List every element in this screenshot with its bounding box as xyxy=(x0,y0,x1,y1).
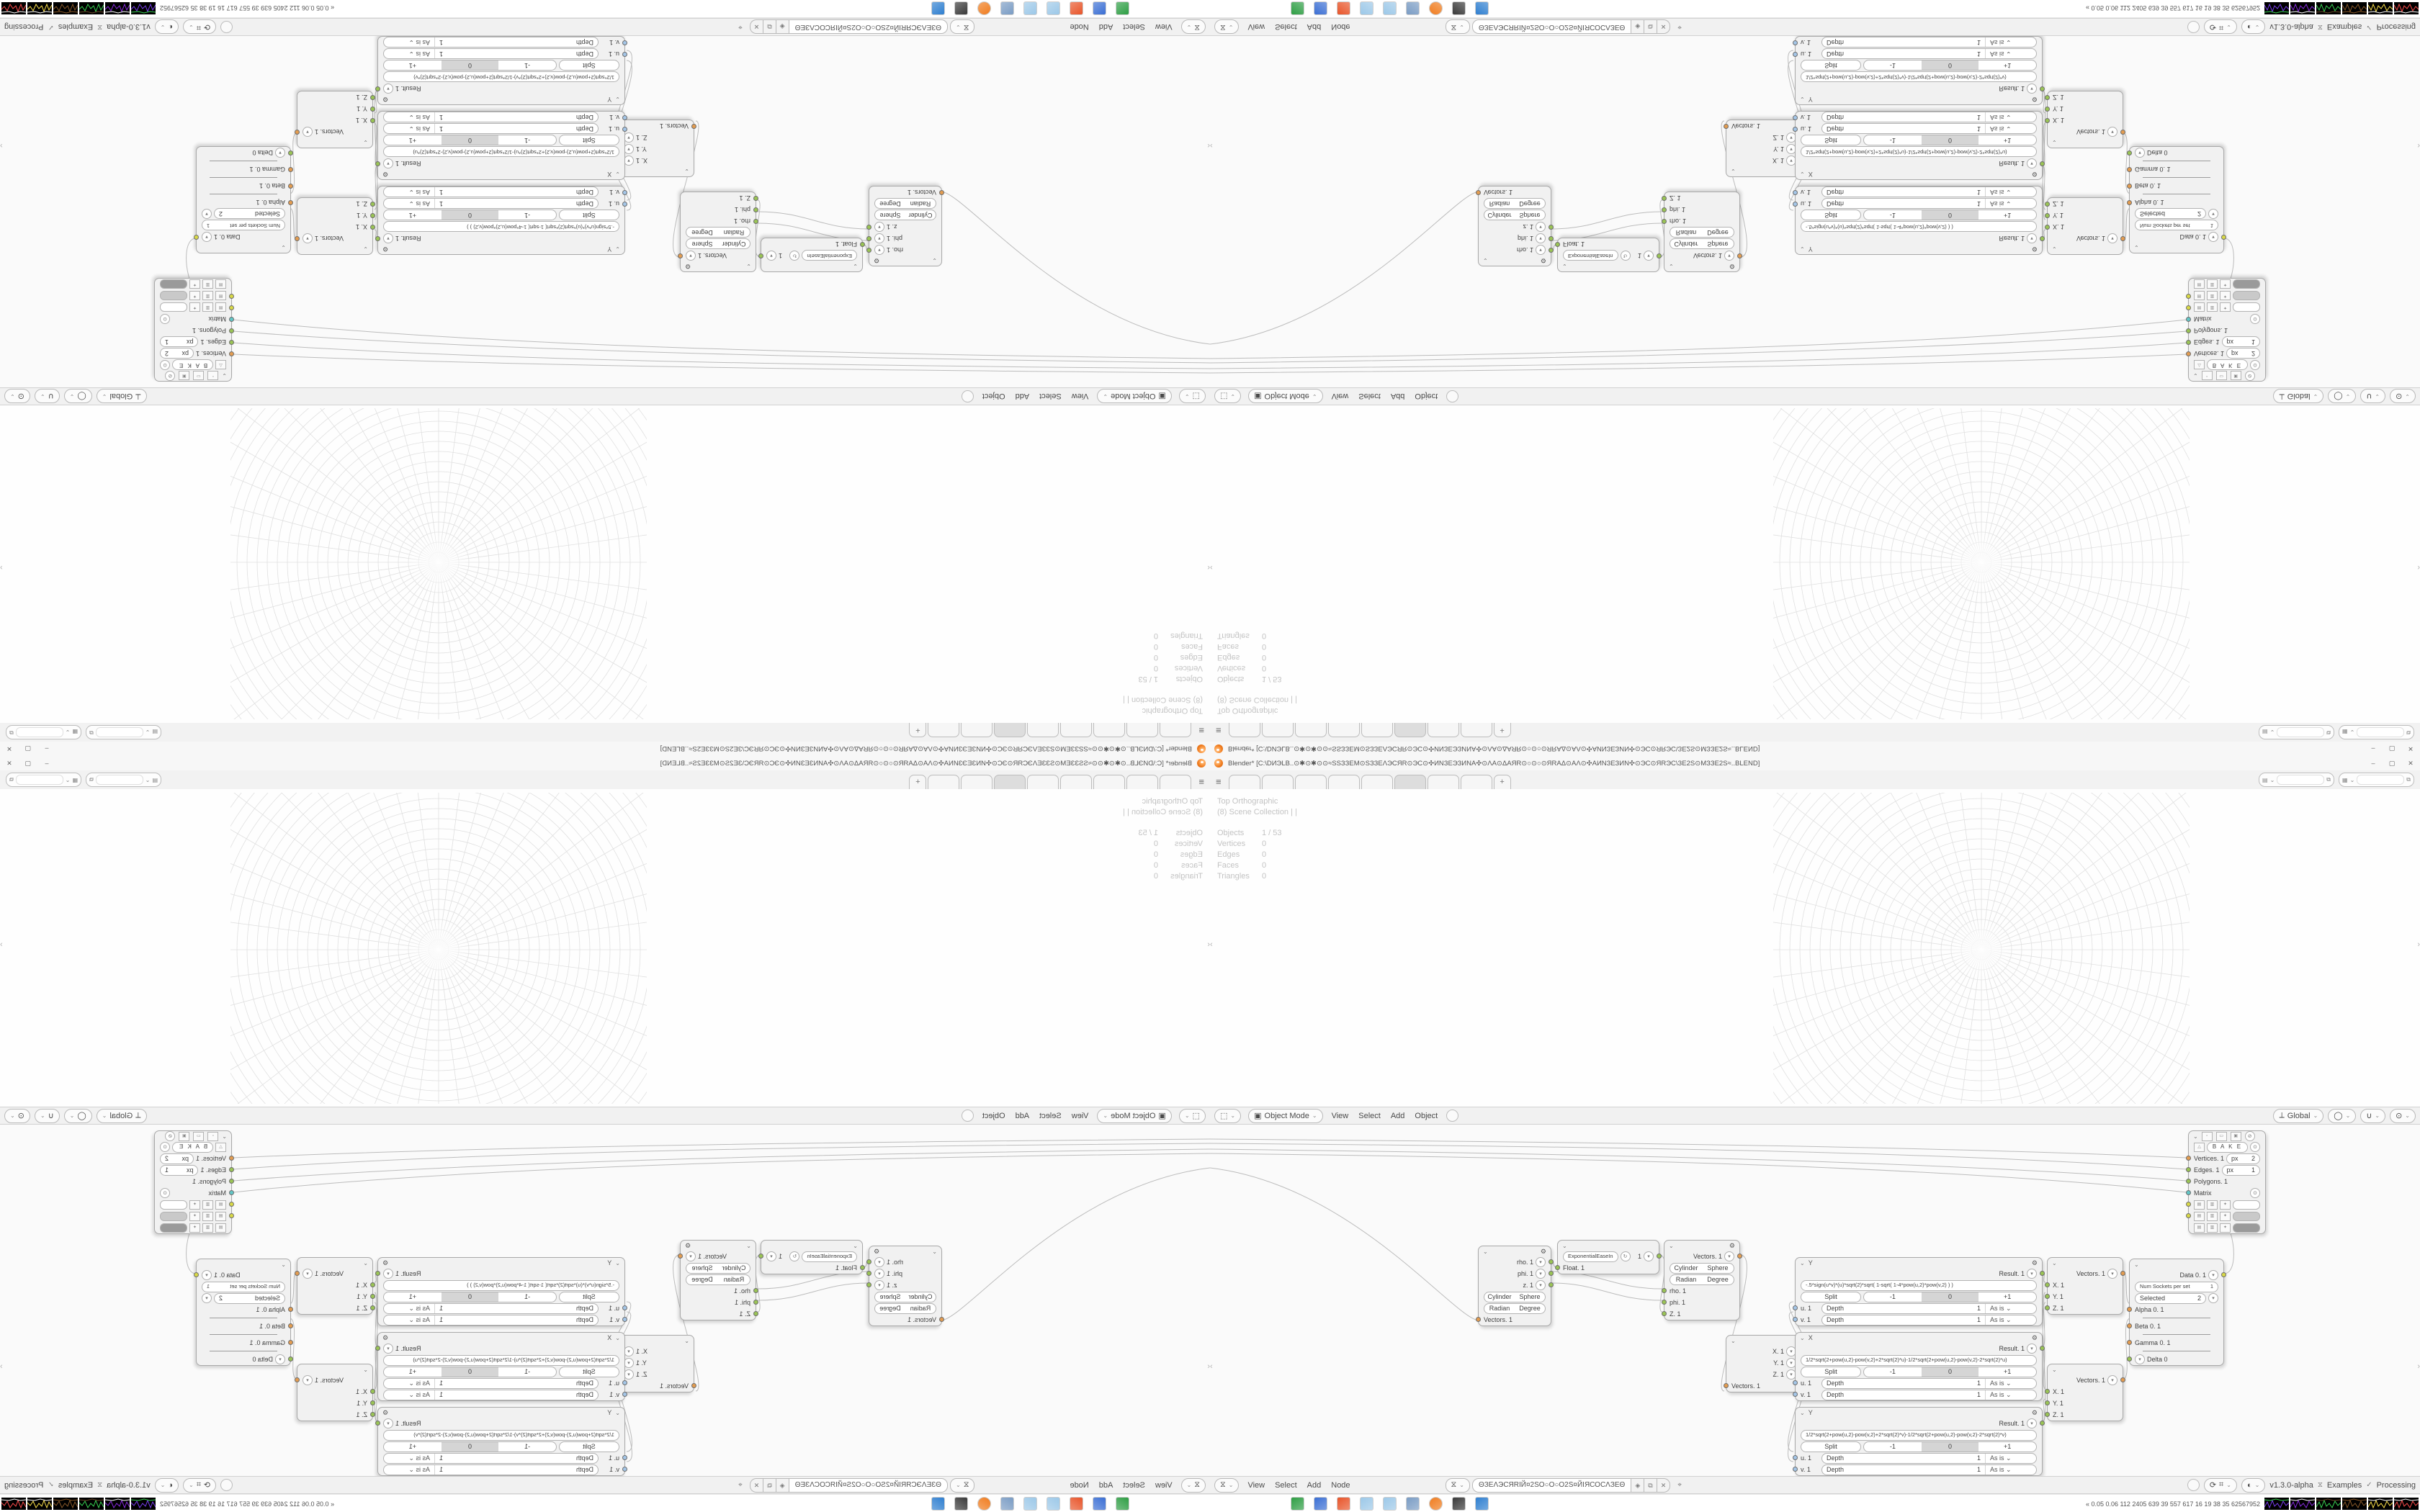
scene-name-field[interactable] xyxy=(2277,727,2324,737)
menu-select[interactable]: Select xyxy=(1038,1112,1063,1120)
taskbar-icon-notebook-2[interactable] xyxy=(1383,1,1397,15)
socket-v-in[interactable] xyxy=(1793,115,1798,120)
taskbar-icon-notebook-1[interactable] xyxy=(1047,1,1060,15)
menu-view[interactable]: View xyxy=(1070,1112,1090,1120)
color-btn[interactable]: ✦ xyxy=(2220,280,2231,289)
menu-add[interactable]: Add xyxy=(1389,1112,1407,1120)
collapse-icon[interactable]: ⌄ xyxy=(615,171,620,178)
socket-menu-icon[interactable]: ▾ xyxy=(1536,222,1546,232)
toolbar-toggle-icon[interactable]: ‹ xyxy=(1210,138,1217,153)
split-button[interactable]: Split xyxy=(1801,60,1861,71)
color-btn[interactable]: ▥ xyxy=(2207,1200,2218,1210)
socket-vectors-out[interactable] xyxy=(295,130,300,135)
depth-row[interactable]: Depth1As is ⌄ xyxy=(1821,199,2037,210)
taskbar-icon-audio-app[interactable] xyxy=(1452,1,1466,15)
px-value[interactable]: 1 xyxy=(165,338,169,347)
collapse-icon[interactable]: ⌄ xyxy=(1483,1248,1488,1255)
grease-pencil-icon[interactable] xyxy=(1446,1110,1458,1122)
pin-icon[interactable]: ⌖ xyxy=(738,23,743,31)
socket-u-in[interactable] xyxy=(622,127,627,132)
socket-menu-icon[interactable]: ▾ xyxy=(2135,1354,2145,1364)
split-button[interactable]: Split xyxy=(1801,1292,1861,1302)
socket-in[interactable] xyxy=(370,202,375,207)
workspace-tab-3[interactable] xyxy=(1093,775,1125,789)
matrix-options-icon[interactable]: ⊙ xyxy=(160,314,170,324)
depth-row[interactable]: Depth1As is ⌄ xyxy=(1821,49,2037,60)
workspace-tab-3[interactable] xyxy=(1295,775,1327,789)
new-scene-icon[interactable]: ⧉ xyxy=(2326,729,2331,736)
socket-menu-icon[interactable]: ▾ xyxy=(275,148,285,158)
workspace-tab-1[interactable] xyxy=(1160,723,1191,737)
socket-edges[interactable] xyxy=(229,1167,234,1172)
pivot-point-button[interactable]: ◯ ⌄ xyxy=(64,390,92,404)
node-formula-x-2[interactable]: ⌄X⚙Result. 1▾1/2*sqrt(2+pow(u,2)-pow(v,2… xyxy=(377,1332,625,1401)
socket-in[interactable] xyxy=(2045,1294,2050,1299)
socket-beta-in[interactable] xyxy=(288,184,293,189)
split-button[interactable]: Split xyxy=(559,1292,619,1302)
angle-toggle[interactable]: RadianDegree xyxy=(874,199,936,210)
node-vector-out[interactable]: ⌄ X. 1▾ Y. 1▾ Z. 1▾ Vectors. 1 xyxy=(1726,1335,1802,1392)
collapse-icon[interactable]: ⌄ xyxy=(363,1260,368,1266)
viewlayer-name-field[interactable] xyxy=(16,775,63,785)
socket-in[interactable] xyxy=(370,118,375,123)
socket-menu-icon[interactable]: ▾ xyxy=(1724,251,1734,261)
menu-view[interactable]: View xyxy=(1246,1481,1266,1490)
tree-browse-button[interactable]: ⧖ ⌄ xyxy=(950,20,974,35)
close-button[interactable]: ✕ xyxy=(0,760,19,768)
color-btn[interactable]: ✦ xyxy=(2220,292,2231,301)
unlink-tree-button[interactable]: ✕ xyxy=(750,1478,763,1493)
socket-result-out[interactable] xyxy=(375,1346,380,1351)
socket-rho-out[interactable] xyxy=(866,248,871,253)
collapse-icon[interactable]: ⌄ xyxy=(222,373,227,379)
curve-icon[interactable]: ↻ xyxy=(1621,251,1631,261)
socket-in[interactable] xyxy=(370,1412,375,1417)
tree-browse-button[interactable]: ⧖ ⌄ xyxy=(950,1478,974,1493)
minimize-button[interactable]: – xyxy=(2364,760,2383,768)
maximize-button[interactable]: ▢ xyxy=(2383,760,2401,768)
workspace-tab-2[interactable] xyxy=(1262,723,1294,737)
node-vector-in-1[interactable]: ⌄Vectors. 1▾X. 1Y. 1Z. 1 xyxy=(2047,1257,2123,1315)
num-sockets-value[interactable]: 1 xyxy=(207,221,210,230)
num-sockets-value[interactable]: 1 xyxy=(207,1282,210,1292)
socket-in[interactable] xyxy=(370,1389,375,1394)
socket-menu-icon[interactable]: ▾ xyxy=(302,1375,313,1385)
socket-menu-icon[interactable]: ▾ xyxy=(202,209,212,219)
menu-object[interactable]: Object xyxy=(981,392,1007,401)
depth-row[interactable]: Depth1As is ⌄ xyxy=(1821,1464,2037,1475)
scene-selector[interactable]: ▤ ⌄ ⧉ xyxy=(86,725,161,739)
socket-menu-icon[interactable]: ▾ xyxy=(383,1344,393,1354)
socket-result-out[interactable] xyxy=(375,1421,380,1426)
socket-menu-icon[interactable]: ▾ xyxy=(874,1257,884,1267)
menu-select[interactable]: Select xyxy=(1357,392,1382,401)
curve-icon[interactable]: ↻ xyxy=(789,1251,799,1261)
tree-name[interactable]: ΘЗЕΛЭСЯRIЙ¤2SО○О○О2S¤ЙIЯСОСΛЗЕΘ xyxy=(789,1478,948,1493)
socket-v-in[interactable] xyxy=(622,1392,627,1397)
color-btn[interactable]: ✦ xyxy=(189,1200,200,1210)
node-editor[interactable]: ⌄ ▫ ▭ ▣ ⊘ △ B A K E ⊙ Vertices. 1 px 2 E… xyxy=(1210,1125,2420,1476)
menu-view[interactable]: View xyxy=(1154,23,1174,32)
socket-v-in[interactable] xyxy=(622,40,627,45)
unlink-tree-button[interactable]: ✕ xyxy=(750,20,763,35)
menu-node[interactable]: Node xyxy=(1068,23,1090,32)
transform-orientation-selector[interactable]: ⟂ Global ⌄ xyxy=(2273,1109,2323,1123)
taskbar-icon-notebook-1[interactable] xyxy=(1047,1497,1060,1511)
display-verts-icon[interactable]: ▫ xyxy=(2202,1132,2213,1141)
scene-name-field[interactable] xyxy=(96,775,143,785)
px-value[interactable]: 2 xyxy=(2251,349,2255,359)
new-scene-icon[interactable]: ⧉ xyxy=(2326,776,2331,783)
color-btn[interactable]: ▥ xyxy=(2207,303,2218,312)
snapping-button[interactable]: ∪ ⌄ xyxy=(35,1109,60,1123)
socket-menu-icon[interactable]: ▾ xyxy=(624,1346,634,1356)
socket-vectors-in[interactable] xyxy=(939,1317,944,1322)
socket-vectors-out[interactable] xyxy=(295,1377,300,1382)
display-faces-icon[interactable]: ▣ xyxy=(2231,372,2241,381)
socket-menu-icon[interactable]: ▾ xyxy=(1536,245,1546,255)
fake-user-button[interactable]: ◈ xyxy=(776,20,789,35)
socket-phi-in[interactable] xyxy=(753,1300,758,1305)
socket-rho-in[interactable] xyxy=(753,219,758,224)
socket-easing-out[interactable] xyxy=(1657,253,1662,258)
angle-toggle[interactable]: RadianDegree xyxy=(1484,1303,1546,1314)
num-sockets-value[interactable]: 1 xyxy=(2210,221,2213,230)
color-btn[interactable]: ✦ xyxy=(189,292,200,301)
menu-node[interactable]: Node xyxy=(1068,1481,1090,1490)
color-btn[interactable]: ▥ xyxy=(202,1223,213,1233)
workspace-tab-6[interactable] xyxy=(994,723,1026,737)
curve-icon[interactable]: ↻ xyxy=(789,251,799,261)
socket-rho-out[interactable] xyxy=(866,1259,871,1264)
collapse-icon[interactable]: ⌄ xyxy=(1562,1243,1567,1249)
num-sockets-value[interactable]: 1 xyxy=(2210,1282,2213,1292)
depth-row[interactable]: Depth1As is ⌄ xyxy=(383,37,599,48)
proportional-edit-button[interactable]: ⊙ ⌄ xyxy=(4,390,30,404)
socket-menu-icon[interactable]: ▾ xyxy=(302,1269,313,1279)
toolbar-toggle-icon[interactable]: ‹ xyxy=(1203,937,1210,953)
socket-phi-out[interactable] xyxy=(866,236,871,241)
socket-polygons[interactable] xyxy=(2186,1179,2191,1184)
menu-select[interactable]: Select xyxy=(1121,23,1147,32)
socket-menu-icon[interactable]: ▾ xyxy=(2208,1270,2218,1280)
color-btn[interactable]: ▤ xyxy=(2194,303,2205,312)
socket-in[interactable] xyxy=(2045,1389,2050,1394)
editor-type-button[interactable]: ⬚ ⌄ xyxy=(1214,1109,1241,1123)
workspace-tab-1[interactable] xyxy=(1160,775,1191,789)
coords-toggle[interactable]: CylinderSphere xyxy=(686,1263,750,1274)
menu-node[interactable]: Node xyxy=(1330,23,1351,32)
edge-color-swatch[interactable] xyxy=(160,1212,187,1221)
snap-toggle-icon[interactable] xyxy=(220,21,233,33)
node-vector-in-1[interactable]: ⌄Vectors. 1▾X. 1Y. 1Z. 1 xyxy=(2047,197,2123,255)
formula-field[interactable]: 1/2*sqrt(2+pow(u,2)-pow(v,2)+2*sqrt(2)*u… xyxy=(383,147,619,158)
coords-toggle[interactable]: CylinderSphere xyxy=(1484,210,1546,221)
collapse-icon[interactable]: ⌄ xyxy=(1731,1338,1736,1344)
collapse-icon[interactable]: ⌄ xyxy=(2052,140,2057,146)
menu-object[interactable]: Object xyxy=(1413,1112,1439,1120)
node-editor[interactable]: ⌄ ▫ ▭ ▣ ⊘ △ B A K E ⊙ Vertices. 1 px 2 E… xyxy=(1210,36,2420,387)
socket-menu-icon[interactable]: ▾ xyxy=(2027,84,2037,94)
bake-button[interactable]: B A K E xyxy=(172,360,213,371)
socket-matrix[interactable] xyxy=(229,317,234,322)
easing-mode-dropdown[interactable]: ExponentialEaseIn xyxy=(802,251,857,261)
socket-in[interactable] xyxy=(2045,107,2050,112)
socket-result-out[interactable] xyxy=(375,86,380,91)
node-vector-polar-out[interactable]: ⌄⚙ rho. 1▾ phi. 1▾ z. 1▾ CylinderSphere … xyxy=(1478,186,1551,266)
socket-vectors-out[interactable] xyxy=(1737,253,1742,258)
workspace-tab-7[interactable] xyxy=(961,775,992,789)
socket-vert-color[interactable] xyxy=(2186,305,2191,310)
socket-float-in[interactable] xyxy=(860,242,865,247)
socket-u-in[interactable] xyxy=(1793,127,1798,132)
socket-menu-icon[interactable]: ▾ xyxy=(624,1369,634,1380)
collapse-icon[interactable]: ⌄ xyxy=(1562,264,1567,270)
socket-menu-icon[interactable]: ▾ xyxy=(2208,209,2218,219)
overlay-options-button[interactable]: ⟳ ⌗ ⌄ xyxy=(183,1478,216,1493)
minimize-button[interactable]: – xyxy=(37,760,56,768)
depth-row[interactable]: Depth1As is ⌄ xyxy=(1821,187,2037,198)
node-vector-in-2[interactable]: ⌄Vectors. 1▾X. 1Y. 1Z. 1 xyxy=(297,91,373,148)
color-btn[interactable]: ▤ xyxy=(2194,292,2205,301)
socket-edge-color[interactable] xyxy=(229,294,234,299)
formula-field[interactable]: 1/2*sqrt(2+pow(u,2)-pow(v,2)+2*sqrt(2)*u… xyxy=(1801,1355,2037,1366)
pin-icon[interactable]: ⌖ xyxy=(1677,23,1682,31)
socket-in[interactable] xyxy=(370,95,375,100)
px-value[interactable]: 1 xyxy=(2251,338,2255,347)
taskbar-icon-notebook-2[interactable] xyxy=(1383,1497,1397,1511)
collapse-icon[interactable]: ⌄ xyxy=(2052,1367,2057,1373)
collapse-icon[interactable]: ⌄ xyxy=(281,1261,286,1268)
socket-menu-icon[interactable]: ▾ xyxy=(1536,1269,1546,1279)
socket-menu-icon[interactable]: ▾ xyxy=(874,1280,884,1290)
socket-menu-icon[interactable]: ▾ xyxy=(2135,148,2145,158)
color-btn[interactable]: ✦ xyxy=(2220,1223,2231,1233)
node-formula-y-3[interactable]: ⌄Y⚙Result. 1▾1/2*sqrt(2+pow(u,2)-pow(v,2… xyxy=(1795,1407,2043,1476)
app-menu-icon[interactable]: ≡ xyxy=(1216,776,1222,787)
taskbar-icon-display-app[interactable] xyxy=(931,1497,945,1511)
socket-edge-color[interactable] xyxy=(2186,1213,2191,1218)
color-btn[interactable]: ▥ xyxy=(202,1212,213,1221)
socket-menu-icon[interactable]: ▾ xyxy=(1536,1257,1546,1267)
workspace-tab-8[interactable] xyxy=(928,775,959,789)
taskbar-icon-file-manager[interactable] xyxy=(1291,1,1304,15)
collapse-icon[interactable]: ⌄ xyxy=(1800,171,1805,178)
socket-rho-out[interactable] xyxy=(1549,1259,1554,1264)
collapse-icon[interactable]: ⌄ xyxy=(615,246,620,253)
split-button[interactable]: Split xyxy=(559,1441,619,1452)
shading-options-button[interactable]: ◐ ⌄ xyxy=(2241,1478,2265,1493)
wrap-segmented[interactable]: -10+1 xyxy=(383,1367,557,1377)
node-vector-polar-in[interactable]: ⌄⚙ Vectors. 1▾ CylinderSphere RadianDegr… xyxy=(680,192,756,272)
node-formula-y-3[interactable]: ⌄Y⚙Result. 1▾1/2*sqrt(2+pow(u,2)-pow(v,2… xyxy=(1795,36,2043,105)
tree-name[interactable]: ΘЗЕΛЭСЯRIЙ¤2SО○О○О2S¤ЙIЯСОСΛЗЕΘ xyxy=(789,20,948,35)
collapse-icon[interactable]: ⌄ xyxy=(1669,1243,1674,1249)
angle-toggle[interactable]: RadianDegree xyxy=(686,1274,750,1285)
workspace-tab-7[interactable] xyxy=(1428,723,1459,737)
menu-object[interactable]: Object xyxy=(981,1112,1007,1120)
color-btn[interactable]: ▥ xyxy=(202,292,213,301)
socket-vectors-out[interactable] xyxy=(1737,1254,1742,1259)
proportional-edit-button[interactable]: ⊙ ⌄ xyxy=(2390,1109,2416,1123)
socket-menu-icon[interactable]: ▾ xyxy=(624,144,634,154)
angle-toggle[interactable]: RadianDegree xyxy=(874,1303,936,1314)
socket-polygons[interactable] xyxy=(229,1179,234,1184)
socket-result-out[interactable] xyxy=(2040,1421,2045,1426)
node-vector-in-2[interactable]: ⌄Vectors. 1▾X. 1Y. 1Z. 1 xyxy=(297,1364,373,1421)
socket-rho-out[interactable] xyxy=(1549,248,1554,253)
socket-menu-icon[interactable]: ▾ xyxy=(202,232,212,242)
toolbar-toggle-icon[interactable]: ‹ xyxy=(1203,559,1210,575)
socket-vectors-in[interactable] xyxy=(1476,1317,1481,1322)
menu-view[interactable]: View xyxy=(1070,392,1090,401)
workspace-tab-5[interactable] xyxy=(1027,775,1059,789)
socket-vectors-out[interactable] xyxy=(295,1271,300,1276)
copy-tree-button[interactable]: ⧉ xyxy=(763,20,775,35)
3d-viewport[interactable]: Top Orthographic (8) Scene Collection | … xyxy=(0,405,1210,723)
socket-gamma-in[interactable] xyxy=(2127,1340,2132,1345)
split-button[interactable]: Split xyxy=(1801,210,1861,221)
selected-value[interactable]: 2 xyxy=(219,210,223,219)
editor-type-button[interactable]: ⬚ ⌄ xyxy=(1179,1109,1206,1123)
socket-delta-in[interactable] xyxy=(2127,1356,2132,1362)
socket-polygons[interactable] xyxy=(2186,328,2191,333)
workspace-tab-3[interactable] xyxy=(1093,723,1125,737)
node-easing[interactable]: ⌄ ExponentialEaseIn ↻ 1 ▾ Float. 1 xyxy=(1557,1240,1659,1274)
snap-toggle-icon[interactable] xyxy=(220,1479,233,1491)
node-vector-in-1[interactable]: ⌄Vectors. 1▾X. 1Y. 1Z. 1 xyxy=(297,197,373,255)
wrap-segmented[interactable]: -10+1 xyxy=(1863,210,2037,221)
collapse-icon[interactable]: ⌄ xyxy=(2134,1261,2139,1268)
socket-rho-in[interactable] xyxy=(753,1288,758,1293)
selected-value[interactable]: 2 xyxy=(2197,1294,2201,1303)
collapse-icon[interactable]: ⌄ xyxy=(1800,1410,1805,1416)
socket-menu-icon[interactable]: ▾ xyxy=(1644,1251,1654,1261)
socket-v-in[interactable] xyxy=(1793,40,1798,45)
selected-value[interactable]: 2 xyxy=(219,1294,223,1303)
viewlayer-selector[interactable]: ▦ ⌄ ⧉ xyxy=(2339,725,2414,739)
socket-menu-icon[interactable]: ▾ xyxy=(202,1270,212,1280)
collapse-icon[interactable]: ⌄ xyxy=(1483,258,1488,264)
taskbar-icon-display-app[interactable] xyxy=(1475,1,1489,15)
rebake-icon[interactable]: ⊙ xyxy=(2250,360,2260,370)
collapse-icon[interactable]: ⌄ xyxy=(853,1243,858,1249)
vertex-color-swatch[interactable] xyxy=(160,303,187,312)
snapping-button[interactable]: ∪ ⌄ xyxy=(35,390,60,404)
minimize-button[interactable]: – xyxy=(2364,745,2383,753)
node-formula-y-3[interactable]: ⌄Y⚙Result. 1▾1/2*sqrt(2+pow(u,2)-pow(v,2… xyxy=(377,36,625,105)
color-btn[interactable]: ▥ xyxy=(2207,1212,2218,1221)
sidebar-toggle-icon[interactable]: › xyxy=(0,559,7,575)
display-edges-icon[interactable]: ▭ xyxy=(193,1132,204,1141)
shading-options-button[interactable]: ◐ ⌄ xyxy=(155,20,179,35)
color-btn[interactable]: ✦ xyxy=(189,303,200,312)
socket-menu-icon[interactable]: ▾ xyxy=(766,1251,776,1261)
socket-result-out[interactable] xyxy=(2040,1271,2045,1276)
socket-menu-icon[interactable]: ▾ xyxy=(874,233,884,243)
depth-row[interactable]: Depth1As is ⌄ xyxy=(383,187,599,198)
color-btn[interactable]: ✦ xyxy=(2220,303,2231,312)
workspace-tab-8[interactable] xyxy=(1461,775,1492,789)
socket-vectors-in[interactable] xyxy=(939,190,944,195)
add-workspace-button[interactable]: + xyxy=(909,723,926,737)
color-btn[interactable]: ▤ xyxy=(2194,280,2205,289)
scene-selector[interactable]: ▤ ⌄ ⧉ xyxy=(2259,773,2334,787)
node-input-switch[interactable]: ⌄ Data 0. 1▾ Num Sockets per set 1 Selec… xyxy=(196,1259,291,1366)
socket-menu-icon[interactable]: ▾ xyxy=(874,245,884,255)
color-btn[interactable]: ▥ xyxy=(2207,280,2218,289)
close-button[interactable]: ✕ xyxy=(2401,745,2420,753)
tree-browse-button[interactable]: ⧖ ⌄ xyxy=(1446,20,1470,35)
socket-menu-icon[interactable]: ▾ xyxy=(1724,1251,1734,1261)
snapping-button[interactable]: ∪ ⌄ xyxy=(2360,1109,2385,1123)
collapse-icon[interactable]: ⌄ xyxy=(684,168,689,175)
workspace-tab-3[interactable] xyxy=(1295,723,1327,737)
pin-icon[interactable]: ⌖ xyxy=(1677,1481,1682,1489)
socket-matrix[interactable] xyxy=(2186,317,2191,322)
workspace-tab-2[interactable] xyxy=(1126,723,1158,737)
copy-tree-button[interactable]: ⧉ xyxy=(1644,1478,1657,1493)
socket-u-in[interactable] xyxy=(1793,52,1798,57)
socket-v-in[interactable] xyxy=(1793,190,1798,195)
pivot-point-button[interactable]: ◯ ⌄ xyxy=(2328,1109,2356,1123)
formula-field[interactable]: -.5*sign(u*v)*(u)*sqrt(2)*sqrt( 1-sqrt( … xyxy=(383,222,619,233)
collapse-icon[interactable]: ⌄ xyxy=(746,264,751,270)
mode-selector[interactable]: ▣ Object Mode ⌄ xyxy=(1248,1109,1322,1123)
socket-menu-icon[interactable]: ▾ xyxy=(2027,1344,2037,1354)
vertex-color-swatch[interactable] xyxy=(160,1200,187,1210)
color-btn[interactable]: ▤ xyxy=(2194,1223,2205,1233)
depth-row[interactable]: Depth1As is ⌄ xyxy=(1821,1453,2037,1464)
maximize-button[interactable]: ▢ xyxy=(19,745,37,753)
socket-menu-icon[interactable]: ▾ xyxy=(624,1358,634,1368)
window-titlebar[interactable]: Blender* [C:\DИЭLB..⊙✱⊙✱⊙⊙≈SSЗЗEM⊙SЗЗEΛЭ… xyxy=(1210,741,2420,756)
new-viewlayer-icon[interactable]: ⧉ xyxy=(9,729,14,736)
socket-menu-icon[interactable]: ▾ xyxy=(383,84,393,94)
socket-menu-icon[interactable]: ▾ xyxy=(2027,1418,2037,1428)
socket-u-in[interactable] xyxy=(1793,1455,1798,1460)
bake-button[interactable]: B A K E xyxy=(2207,1142,2248,1153)
depth-row[interactable]: Depth1As is ⌄ xyxy=(383,1378,599,1389)
mode-selector[interactable]: ▣ Object Mode ⌄ xyxy=(1097,390,1171,404)
socket-edges[interactable] xyxy=(2186,340,2191,345)
workspace-tab-6[interactable] xyxy=(994,775,1026,789)
menu-add[interactable]: Add xyxy=(1389,392,1407,401)
socket-easing-out[interactable] xyxy=(1657,1254,1662,1259)
collapse-icon[interactable]: ⌄ xyxy=(363,246,368,253)
collapse-icon[interactable]: ⌄ xyxy=(2052,1260,2057,1266)
menu-select[interactable]: Select xyxy=(1038,392,1063,401)
display-faces-icon[interactable]: ▣ xyxy=(2231,1132,2241,1141)
node-easing[interactable]: ⌄ ExponentialEaseIn ↻ 1 ▾ Float. 1 xyxy=(1557,238,1659,272)
examples-menu[interactable]: Examples xyxy=(58,1481,93,1490)
wrap-segmented[interactable]: -10+1 xyxy=(383,1292,557,1302)
socket-u-in[interactable] xyxy=(622,1305,627,1310)
socket-edge-color[interactable] xyxy=(229,1213,234,1218)
socket-vertices[interactable] xyxy=(2186,351,2191,356)
wrap-segmented[interactable]: -10+1 xyxy=(1863,1292,2037,1302)
menu-view[interactable]: View xyxy=(1246,23,1266,32)
depth-row[interactable]: Depth1As is ⌄ xyxy=(383,112,599,123)
color-btn[interactable]: ▥ xyxy=(202,280,213,289)
split-button[interactable]: Split xyxy=(1801,1441,1861,1452)
socket-data-out[interactable] xyxy=(2221,1272,2226,1277)
coords-toggle[interactable]: CylinderSphere xyxy=(1670,239,1734,250)
toolbar-toggle-icon[interactable]: ‹ xyxy=(1203,1359,1210,1374)
window-titlebar[interactable]: Blender* [C:\DИЭLB..⊙✱⊙✱⊙⊙≈SSЗЗEM⊙SЗЗEΛЭ… xyxy=(1210,756,2420,771)
rebake-icon[interactable]: ⊙ xyxy=(2250,1142,2260,1152)
app-menu-icon[interactable]: ≡ xyxy=(1198,725,1204,736)
